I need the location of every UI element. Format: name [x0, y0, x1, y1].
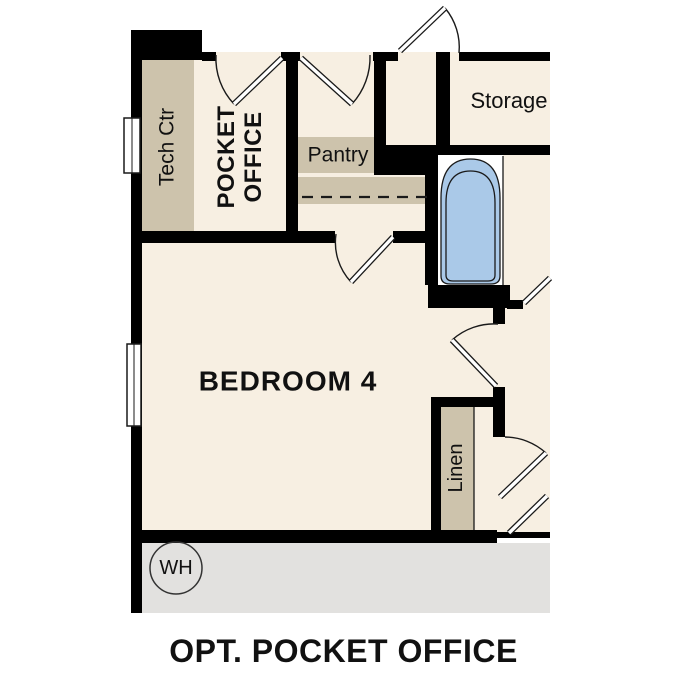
bedroom-label: BEDROOM 4: [199, 367, 378, 398]
counter-cabinet: [298, 177, 431, 204]
floor-plan-drawing: [0, 0, 687, 687]
window-2: [127, 344, 141, 426]
wall-linen-top: [431, 397, 493, 407]
wall-storage-bottom: [398, 145, 550, 155]
floor-plan: Tech Ctr POCKET OFFICE Pantry Storage BE…: [0, 0, 687, 687]
pocket-office-label-line1: POCKET: [214, 105, 241, 208]
door-storage: [400, 8, 459, 53]
storage-label: Storage: [470, 89, 547, 113]
pocket-office-label-line2: OFFICE: [241, 105, 268, 208]
wall-storage-left: [436, 52, 450, 147]
wall-bedroom-top-left: [133, 231, 335, 243]
wall-below-tub: [428, 285, 510, 308]
linen-label: Linen: [445, 444, 467, 493]
wall-stub-lower: [493, 387, 505, 437]
water-heater-label: WH: [159, 557, 192, 579]
pocket-office-label: POCKET OFFICE: [214, 105, 268, 208]
bathtub: [441, 159, 500, 284]
plan-title: OPT. POCKET OFFICE: [0, 633, 687, 670]
pantry-label: Pantry: [308, 143, 369, 166]
wall-top-a: [202, 52, 216, 61]
wall-stub-upper: [493, 308, 505, 324]
wall-pocket-office-right: [286, 52, 298, 242]
wall-bedroom-bottom: [137, 530, 497, 543]
wall-top-d: [459, 52, 550, 61]
window-1: [124, 118, 140, 173]
wall-niche-left: [425, 150, 438, 285]
wall-below-tub-ext: [507, 300, 523, 309]
wall-linen-left: [431, 397, 441, 533]
tech-ctr-label: Tech Ctr: [155, 108, 178, 186]
wall-pantry-right: [374, 52, 386, 145]
wall-bottom-right-thin: [497, 532, 550, 538]
garage-strip: [142, 543, 550, 613]
